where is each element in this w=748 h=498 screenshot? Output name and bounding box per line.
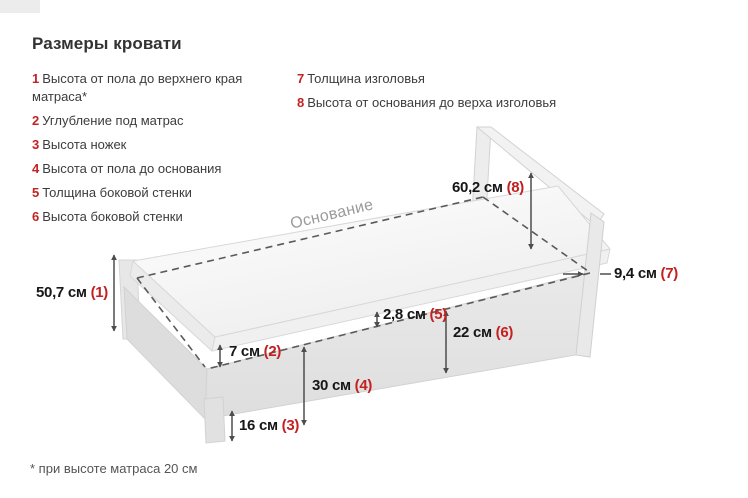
dimension-label-1: 50,7 см (1) [28,284,108,301]
dimension-label-4: 30 см (4) [312,377,372,394]
legend-item-6: 6Высота боковой стенки [32,208,277,226]
dimension-label-8: 60,2 см (8) [430,179,524,196]
legend-item-4: 4Высота от пола до основания [32,160,277,178]
legend-left-column: 1Высота от пола до верхнего края матраса… [32,70,277,232]
legend-item-8: 8Высота от основания до верха изголовья [297,94,597,112]
legend-item-5: 5Толщина боковой стенки [32,184,277,202]
legend-item-3: 3Высота ножек [32,136,277,154]
page-title: Размеры кровати [32,34,182,54]
foot-near-leg [204,397,225,443]
legend-item-7: 7Толщина изголовья [297,70,597,88]
dimension-label-3: 16 см (3) [239,417,299,434]
legend-right-column: 7Толщина изголовья 8Высота от основания … [297,70,597,118]
dimension-label-5: 2,8 см (5) [383,306,447,323]
legend-item-2: 2Углубление под матрас [32,112,277,130]
dimension-label-6: 22 см (6) [453,324,513,341]
dimension-label-2: 7 см (2) [229,343,281,360]
legend-item-1: 1Высота от пола до верхнего края матраса… [32,70,277,106]
footnote: * при высоте матраса 20 см [30,461,197,476]
bed-dimensions-infographic: Размеры кровати 1Высота от пола до верхн… [0,0,748,498]
dimension-label-7: 9,4 см (7) [614,265,678,282]
